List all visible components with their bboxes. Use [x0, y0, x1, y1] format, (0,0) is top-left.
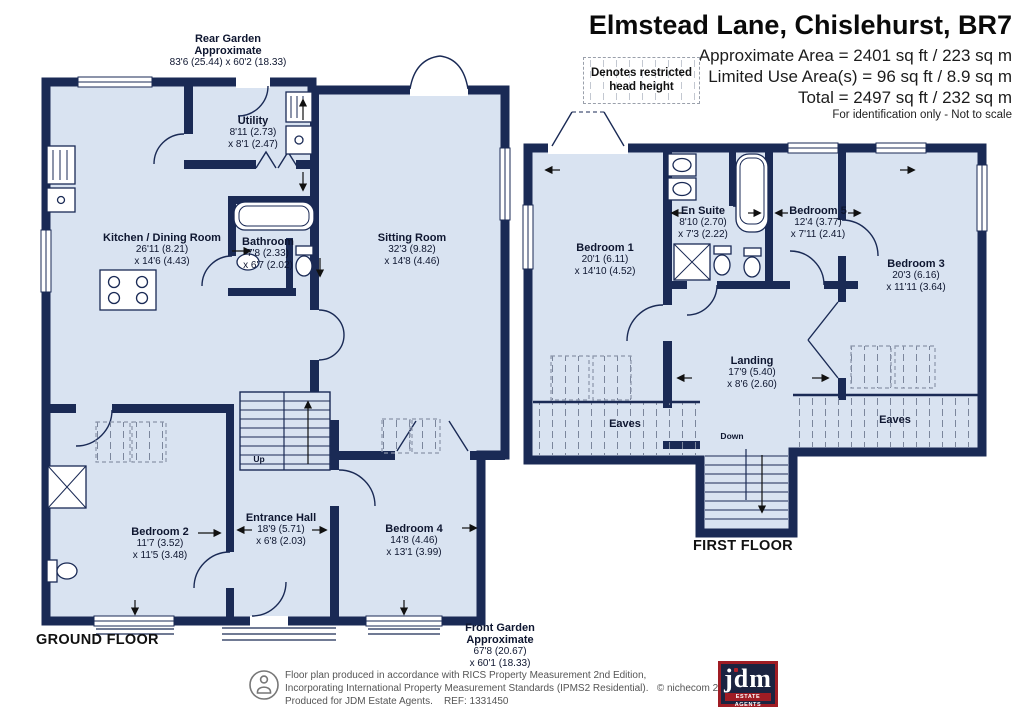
jdm-logo-tagline: ESTATE AGENTS — [725, 693, 771, 701]
rear-garden-label: Rear Garden Approximate 83'6 (25.44) x 6… — [170, 33, 287, 69]
first-floor-plan — [523, 112, 987, 533]
room-label-entrance-hall: Entrance Hall 18'9 (5.71) x 6'8 (2.03) — [246, 512, 316, 547]
legend-text: Denotes restricted head height — [584, 66, 699, 94]
room-label-bedroom5: Bedroom 5 12'4 (3.77) x 7'11 (2.41) — [789, 205, 846, 240]
footer-line-2: Incorporating International Property Mea… — [285, 682, 738, 695]
footer-line-3: Produced for JDM Estate Agents. REF: 133… — [285, 695, 738, 708]
jdm-logo-dot — [734, 668, 738, 672]
total-area: Total = 2497 sq ft / 232 sq m — [699, 87, 1012, 108]
stairs-up-label: Up — [253, 454, 264, 464]
scale-disclaimer: For identification only - Not to scale — [832, 109, 1012, 121]
balcony-door-opening — [548, 143, 628, 154]
jdm-logo: jdm ESTATE AGENTS — [718, 661, 778, 707]
room-label-landing: Landing 17'9 (5.40) x 8'6 (2.60) — [727, 355, 777, 390]
room-label-ensuite: En Suite 8'10 (2.70) x 7'3 (2.22) — [678, 205, 728, 240]
room-label-bathroom: Bathroom 7'8 (2.33) x 6'7 (2.02) — [242, 236, 294, 271]
ground-floor-title: GROUND FLOOR — [36, 632, 159, 648]
footer-disclaimer: Floor plan produced in accordance with R… — [285, 669, 738, 708]
floorplan-page: Elmstead Lane, Chislehurst, BR7 Approxim… — [0, 0, 1020, 721]
page-title: Elmstead Lane, Chislehurst, BR7 — [589, 10, 1012, 41]
room-label-bedroom2: Bedroom 2 11'7 (3.52) x 11'5 (3.48) — [131, 526, 188, 561]
stairs-down-label: Down — [720, 431, 743, 441]
limited-use-area: Limited Use Area(s) = 96 sq ft / 8.9 sq … — [699, 66, 1012, 87]
first-floor-title: FIRST FLOOR — [693, 538, 793, 554]
footer-line-1: Floor plan produced in accordance with R… — [285, 669, 738, 682]
eaves-right-label: Eaves — [879, 414, 911, 426]
room-label-kitchen: Kitchen / Dining Room 26'11 (8.21) x 14'… — [103, 232, 221, 267]
restricted-height-legend: Denotes restricted head height — [583, 57, 700, 104]
front-garden-label: Front Garden Approximate 67'8 (20.67) x … — [465, 622, 535, 669]
person-icon — [247, 668, 281, 709]
room-label-utility: Utility 8'11 (2.73) x 8'1 (2.47) — [228, 115, 278, 150]
eaves-left-label: Eaves — [609, 418, 641, 430]
approximate-area: Approximate Area = 2401 sq ft / 223 sq m — [699, 45, 1012, 66]
area-summary: Approximate Area = 2401 sq ft / 223 sq m… — [699, 45, 1012, 108]
room-label-bedroom3: Bedroom 3 20'3 (6.16) x 11'11 (3.64) — [886, 258, 945, 293]
room-label-bedroom4: Bedroom 4 14'8 (4.46) x 13'1 (3.99) — [385, 523, 442, 558]
room-label-sitting-room: Sitting Room 32'3 (9.82) x 14'8 (4.46) — [378, 232, 446, 267]
room-label-bedroom1: Bedroom 1 20'1 (6.11) x 14'10 (4.52) — [575, 242, 636, 277]
jdm-logo-text: jdm — [721, 665, 775, 693]
